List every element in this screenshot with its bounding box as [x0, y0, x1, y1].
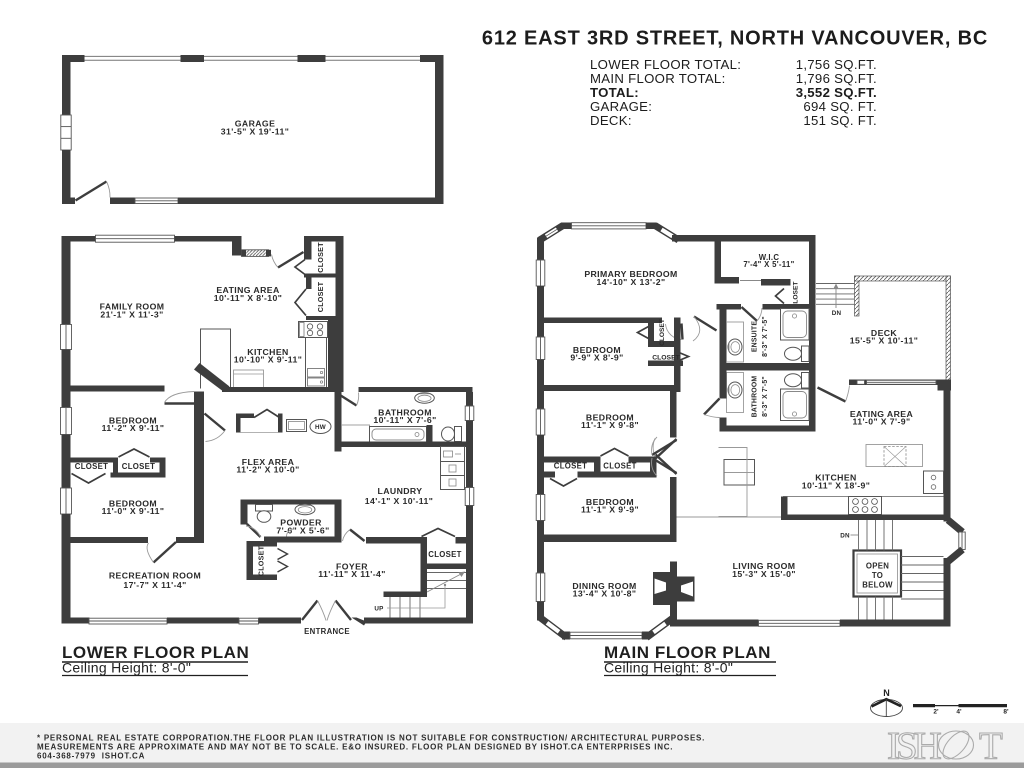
svg-text:17'-7" X 11'-4": 17'-7" X 11'-4" [123, 580, 186, 590]
svg-text:1,796 SQ.FT.: 1,796 SQ.FT. [796, 71, 877, 86]
svg-text:11'-2" X 9'-11": 11'-2" X 9'-11" [102, 423, 165, 433]
svg-text:N: N [883, 688, 890, 698]
svg-text:TOTAL:: TOTAL: [590, 85, 639, 100]
svg-text:8'-3" X 7'-5": 8'-3" X 7'-5" [762, 316, 769, 357]
svg-text:CLOSET: CLOSET [603, 462, 636, 471]
svg-text:ENTRANCE: ENTRANCE [304, 627, 350, 636]
svg-text:11'-1" X 9'-9": 11'-1" X 9'-9" [581, 505, 639, 515]
svg-text:* PERSONAL REAL ESTATE CORPORA: * PERSONAL REAL ESTATE CORPORATION.THE F… [37, 734, 705, 743]
svg-text:OPEN: OPEN [866, 562, 889, 571]
svg-text:DECK:: DECK: [590, 113, 632, 128]
svg-text:8'-3" X 7'-5": 8'-3" X 7'-5" [762, 376, 769, 417]
svg-text:7'-6" X 5'-6": 7'-6" X 5'-6" [276, 526, 329, 536]
svg-text:9'-9" X 8'-9": 9'-9" X 8'-9" [570, 353, 623, 363]
svg-text:3,552 SQ.FT.: 3,552 SQ.FT. [796, 85, 877, 100]
svg-text:TO: TO [872, 571, 883, 580]
svg-text:BATHROOM: BATHROOM [752, 376, 759, 418]
svg-text:CLOSET: CLOSET [652, 355, 680, 362]
svg-text:11'-0" X 7'-9": 11'-0" X 7'-9" [852, 417, 910, 427]
svg-text:CLOSET: CLOSET [554, 462, 587, 471]
svg-text:Ceiling Height: 8'-0": Ceiling Height: 8'-0" [62, 660, 191, 676]
svg-text:CLOSET: CLOSET [428, 550, 461, 559]
svg-text:604-368-7979 ISHOT.CA: 604-368-7979 ISHOT.CA [37, 752, 145, 761]
svg-text:MEASUREMENTS ARE APPROXIMATE A: MEASUREMENTS ARE APPROXIMATE AND MAY NOT… [37, 743, 673, 752]
svg-text:11'-1" X 9'-8": 11'-1" X 9'-8" [581, 420, 639, 430]
svg-text:10'-11" X 8'-10": 10'-11" X 8'-10" [214, 293, 283, 303]
svg-text:GARAGE:: GARAGE: [590, 99, 652, 114]
svg-text:RECREATION ROOM: RECREATION ROOM [109, 571, 201, 581]
svg-text:7'-4" X 5'-11": 7'-4" X 5'-11" [743, 260, 794, 269]
svg-text:DN: DN [832, 310, 842, 317]
svg-text:10'-11" X 18'-9": 10'-11" X 18'-9" [802, 481, 871, 491]
svg-text:14'-1" X 10'-11": 14'-1" X 10'-11" [365, 496, 434, 506]
svg-text:UP: UP [374, 606, 383, 613]
svg-text:612 EAST 3RD STREET, NORTH VAN: 612 EAST 3RD STREET, NORTH VANCOUVER, BC [482, 28, 988, 50]
svg-text:LOWER FLOOR TOTAL:: LOWER FLOOR TOTAL: [590, 57, 741, 72]
svg-text:CLOSET: CLOSET [122, 462, 155, 471]
svg-text:21'-1" X 11'-3": 21'-1" X 11'-3" [100, 310, 163, 320]
svg-text:T: T [979, 725, 1003, 768]
svg-text:2': 2' [933, 709, 939, 716]
svg-text:ISH: ISH [887, 725, 942, 768]
svg-text:10'-11" X 7'-6": 10'-11" X 7'-6" [373, 415, 436, 425]
svg-text:CLOSET: CLOSET [659, 319, 666, 346]
svg-text:694 SQ. FT.: 694 SQ. FT. [803, 99, 877, 114]
svg-text:11'-11" X 11'-4": 11'-11" X 11'-4" [318, 569, 386, 579]
svg-text:1,756 SQ.FT.: 1,756 SQ.FT. [796, 57, 877, 72]
svg-text:CLOSET: CLOSET [316, 281, 325, 312]
svg-text:15'-3" X 15'-0": 15'-3" X 15'-0" [732, 569, 796, 579]
svg-text:ENSUITE: ENSUITE [752, 321, 759, 352]
svg-text:11'-0" X 9'-11": 11'-0" X 9'-11" [102, 506, 165, 516]
svg-text:LAUNDRY: LAUNDRY [378, 486, 423, 496]
svg-text:DN: DN [840, 533, 850, 540]
svg-text:4': 4' [956, 709, 962, 716]
svg-text:8': 8' [1003, 709, 1009, 716]
svg-text:CLOSET: CLOSET [75, 462, 108, 471]
svg-text:BELOW: BELOW [862, 581, 893, 590]
svg-text:CLOSET: CLOSET [316, 242, 325, 273]
svg-text:HW: HW [315, 424, 326, 431]
svg-text:Ceiling Height: 8'-0": Ceiling Height: 8'-0" [604, 660, 733, 676]
svg-text:MAIN FLOOR TOTAL:: MAIN FLOOR TOTAL: [590, 71, 726, 86]
svg-text:11'-2" X 10'-0": 11'-2" X 10'-0" [236, 465, 299, 475]
svg-text:10'-10" X 9'-11": 10'-10" X 9'-11" [234, 355, 303, 365]
svg-text:151 SQ. FT.: 151 SQ. FT. [803, 113, 877, 128]
svg-text:14'-10" X 13'-2": 14'-10" X 13'-2" [597, 277, 666, 287]
svg-text:15'-5" X 10'-11": 15'-5" X 10'-11" [850, 336, 919, 346]
svg-text:13'-4" X 10'-8": 13'-4" X 10'-8" [573, 589, 637, 599]
svg-text:CLOSET: CLOSET [257, 545, 266, 576]
svg-text:31'-5" X 19'-11": 31'-5" X 19'-11" [221, 127, 290, 137]
